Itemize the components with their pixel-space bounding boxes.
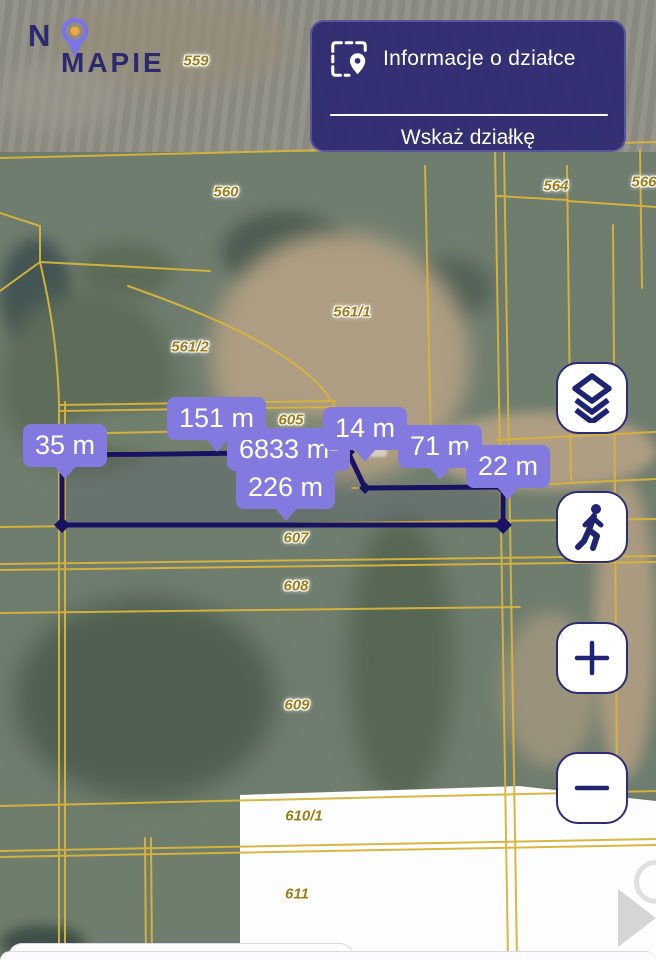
minus-icon: [572, 768, 612, 808]
app-logo: N MAPIE: [26, 16, 196, 78]
parcel-number-label: 609: [284, 697, 309, 714]
parcel-number-label: 566: [631, 174, 656, 191]
parcel-number-label: 561/1: [333, 304, 371, 321]
segment-measurement-label: 22 m: [466, 445, 550, 488]
parcel-scan-pin-icon: [328, 38, 370, 80]
parcel-info-button[interactable]: Informacje o działce: [312, 22, 624, 80]
zoom-out-button[interactable]: [556, 752, 628, 824]
segment-measurement-label: 151 m: [167, 397, 266, 440]
zoom-in-button[interactable]: [556, 622, 628, 694]
parcel-number-label: 605: [278, 412, 303, 429]
watermark-arrow-icon: [618, 889, 656, 947]
parcel-number-label: 560: [213, 184, 238, 201]
street-view-walk-button[interactable]: [556, 491, 628, 563]
segment-measurement-label: 14 m: [323, 407, 407, 450]
parcel-info-panel: Informacje o działce Wskaż działkę: [310, 20, 626, 152]
parcel-number-label: 607: [283, 530, 308, 547]
panel-divider: [330, 114, 608, 116]
walking-person-icon: [572, 503, 612, 551]
parcel-number-label: 610/1: [285, 808, 323, 825]
plus-icon: [572, 638, 612, 678]
parcel-number-label: 561/2: [171, 339, 209, 356]
segment-measurement-label: 35 m: [23, 424, 107, 467]
parcel-number-label: 611: [285, 886, 309, 903]
pick-parcel-button[interactable]: Wskaż działkę: [312, 126, 624, 150]
segment-measurement-label: 226 m: [236, 466, 335, 509]
layers-button[interactable]: [556, 362, 628, 434]
logo-text-suffix: MAPIE: [61, 47, 165, 79]
bottom-sheet[interactable]: [0, 951, 656, 960]
pick-parcel-button-label: Wskaż działkę: [401, 126, 535, 149]
parcel-number-label: 564: [543, 178, 568, 195]
layers-icon: [571, 373, 613, 423]
parcel-number-label: 608: [283, 578, 308, 595]
logo-text-prefix: N: [28, 18, 50, 54]
map-app-screen: 559 560 564 566 561/1 561/2 605 607 608 …: [0, 0, 656, 960]
parcel-info-button-label: Informacje o działce: [383, 47, 576, 71]
